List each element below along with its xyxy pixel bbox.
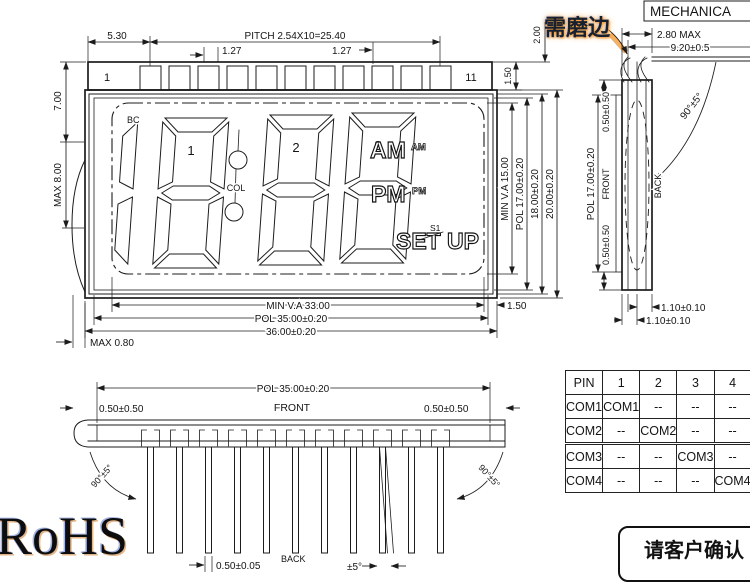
dim-max-0-80: MAX 0.80 (90, 338, 134, 349)
pin-lead (293, 447, 299, 553)
am-annunciator: AM (370, 137, 406, 163)
grind-note-annotation: 需磨边 (544, 10, 610, 42)
pm-small-annunciator: PM (412, 186, 426, 197)
pin-lead (148, 447, 154, 553)
dim-pol-17: POL 17.00±0.20 (515, 157, 526, 230)
dim-angle-right: 90°±5° (476, 463, 502, 490)
pin-lead-tilted (380, 447, 394, 553)
dim-5-30: 5.30 (107, 31, 127, 42)
pin-table-cell: COM2 (640, 419, 677, 444)
bent-pin-line (652, 57, 750, 61)
pin-table-cell: COM2 (566, 419, 603, 444)
dim-pin-thickness: 0.50±0.05 (216, 561, 261, 572)
pin-table-row: COM2--COM2---- (566, 419, 750, 444)
pin-number-first: 1 (104, 72, 110, 84)
bc-segment-label: BC (127, 115, 140, 125)
drawing-title: MECHANICA (650, 4, 731, 19)
pin-lead (235, 447, 241, 553)
pin-bracket (287, 430, 305, 446)
dim-tilt: ±5° (347, 562, 362, 573)
bottom-front-label: FRONT (274, 402, 311, 414)
pin-table-row: COM3----COM3-- (566, 444, 750, 469)
colon-dot-bottom (225, 203, 243, 221)
pin-table-cell: -- (603, 469, 640, 493)
pin-pad (140, 66, 161, 90)
dim-36-00: 36.00±0.20 (266, 327, 316, 338)
dim-1-50-right: 1.50 (507, 301, 527, 312)
dim-off-left: 0.50±0.50 (99, 404, 144, 415)
glass-outline (85, 90, 497, 298)
bar-left-cap (74, 420, 88, 447)
pin-pad (372, 66, 393, 90)
pin-table-header-cell: PIN (566, 371, 603, 395)
dim-2-80-max: 2.80 MAX (657, 30, 701, 41)
pin-pad (401, 66, 422, 90)
pin-table-header: PIN1234 (566, 371, 750, 395)
pin-com-table: PIN1234 COM1COM1------COM2--COM2----COM3… (565, 370, 750, 493)
pin-pad (343, 66, 364, 90)
pin-pad (169, 66, 190, 90)
colon-label: COL (227, 183, 246, 193)
pin-bracket (229, 430, 247, 446)
pin-bracket (345, 430, 363, 446)
dim-20-00: 20.00±0.20 (545, 169, 556, 219)
dim-bottom-pol-35: POL 35.00±0.20 (257, 384, 330, 395)
dim-pitch: PITCH 2.54X10=25.40 (245, 31, 346, 42)
pin-bracket (200, 430, 218, 446)
pin-bracket (316, 430, 334, 446)
side-polarizer-strip (616, 95, 622, 272)
dim-9-20: 9.20±0.5 (671, 43, 710, 54)
s1-label: S1 (430, 223, 441, 233)
pin-table-cell: -- (714, 444, 750, 469)
pin-bracket (171, 430, 189, 446)
dim-angle-left: 90°±5° (89, 462, 115, 489)
dim-7-00: 7.00 (53, 91, 64, 111)
dim-18-00: 18.00±0.20 (530, 169, 541, 219)
rohs-logo: RoHS (0, 505, 128, 567)
pin-table-body: COM1COM1------COM2--COM2----COM3----COM3… (566, 395, 750, 493)
front-view: 1 11 123 BC COL AM AM PM PM SET UP S1 5.… (53, 22, 563, 349)
pin-table-cell: COM3 (677, 444, 714, 469)
pin-bracket (258, 430, 276, 446)
dim-off-right: 0.50±0.50 (424, 404, 469, 415)
pin-lead (206, 447, 212, 553)
colon-leader-line (238, 130, 239, 151)
pin-table-header-cell: 4 (714, 371, 750, 395)
dim-min-va-33: MIN V.A 33.00 (266, 301, 330, 312)
glass-inner-outline (89, 94, 493, 294)
pin-lead (351, 447, 357, 553)
bottom-view: POL 35.00±0.20 0.50±0.50 FRONT 0.50±0.50… (60, 382, 520, 573)
pin-table-cell: COM3 (566, 444, 603, 469)
pin-lead (409, 447, 415, 553)
pin-table-cell: -- (640, 444, 677, 469)
pin-lead (264, 447, 270, 553)
pin-table-cell: -- (677, 395, 714, 419)
grind-highlight-mark (610, 34, 626, 52)
pin-lead (322, 447, 328, 553)
dim-2-00: 2.00 (532, 26, 542, 44)
pin-bracket (403, 430, 421, 446)
pin-table-header-cell: 2 (640, 371, 677, 395)
pin-table-cell: -- (714, 419, 750, 444)
pin-table-cell: -- (603, 444, 640, 469)
seven-segment-digit (258, 115, 334, 265)
digit-label: 1 (187, 143, 194, 158)
dim-1-10-b: 1.10±0.10 (646, 316, 691, 327)
side-front-label: FRONT (601, 168, 611, 199)
dim-1-27-left: 1.27 (222, 46, 242, 57)
bc-half-digit (114, 122, 138, 264)
pin-table-header-cell: 3 (677, 371, 714, 395)
pin-bracket (432, 430, 450, 446)
up-annunciator: UP (447, 228, 479, 254)
pin-table-cell: -- (603, 419, 640, 444)
pin-table-cell: COM1 (566, 395, 603, 419)
seven-segment-digit (153, 118, 229, 268)
pin-table-cell: -- (677, 469, 714, 493)
digit-label: 2 (292, 140, 299, 155)
pin-bracket (142, 430, 160, 446)
technical-drawing: 1 11 123 BC COL AM AM PM PM SET UP S1 5.… (0, 0, 750, 586)
dim-min-va-15: MIN V.A 15.00 (500, 157, 511, 221)
pin-bracket (374, 430, 392, 446)
mechanical-drawing-page: 1 11 123 BC COL AM AM PM PM SET UP S1 5.… (0, 0, 750, 586)
pin-pad (256, 66, 277, 90)
left-bump-outline (72, 160, 85, 292)
colon-dot-top (229, 151, 247, 169)
pin-pad (430, 66, 451, 90)
bottom-pins (142, 430, 450, 553)
dim-off-bottom: 0.50±0.50 (601, 225, 611, 265)
side-view: MECHANICA 2.80 MAX 9.20±0.5 90°±5° POL 1… (586, 1, 750, 327)
pin-table-cell: COM1 (603, 395, 640, 419)
dim-side-pol-17: POL 17.00±0.20 (586, 147, 597, 220)
pin-lead (438, 447, 444, 553)
pin-lead (177, 447, 183, 553)
pin-table-cell: COM4 (714, 469, 750, 493)
pin-pad (198, 66, 219, 90)
dim-max-8-00: MAX 8.00 (53, 163, 64, 207)
pin-table-row: COM1COM1------ (566, 395, 750, 419)
dim-1-50-top: 1.50 (503, 67, 513, 85)
pin-pad (285, 66, 306, 90)
dim-angle-90: 90°±5° (678, 91, 705, 122)
pin-table-header-cell: 1 (603, 371, 640, 395)
pin-table-cell: -- (640, 395, 677, 419)
pin-table-cell: -- (640, 469, 677, 493)
pin-table-row: COM4------COM4 (566, 469, 750, 493)
dim-1-27-right: 1.27 (332, 46, 352, 57)
pin-hook-curls (621, 57, 649, 82)
pin-pad (314, 66, 335, 90)
pin-table-cell: -- (714, 395, 750, 419)
pin-pad (227, 66, 248, 90)
pin-pads (140, 66, 451, 90)
pin-number-last: 11 (465, 72, 476, 84)
am-small-annunciator: AM (411, 142, 426, 153)
pin-table-cell: -- (677, 419, 714, 444)
side-back-label: BACK (653, 174, 663, 199)
customer-confirm-text: 请客户确认 (644, 534, 750, 563)
pin-table-cell: COM4 (566, 469, 603, 493)
dim-1-10-a: 1.10±0.10 (661, 303, 706, 314)
pm-annunciator: PM (371, 181, 406, 207)
customer-confirm-box: 请客户确认 (618, 526, 750, 582)
dim-pol-35: POL 35.00±0.20 (255, 314, 328, 325)
bottom-back-label: BACK (281, 554, 306, 564)
dim-off-top: 0.50±0.50 (601, 92, 611, 132)
